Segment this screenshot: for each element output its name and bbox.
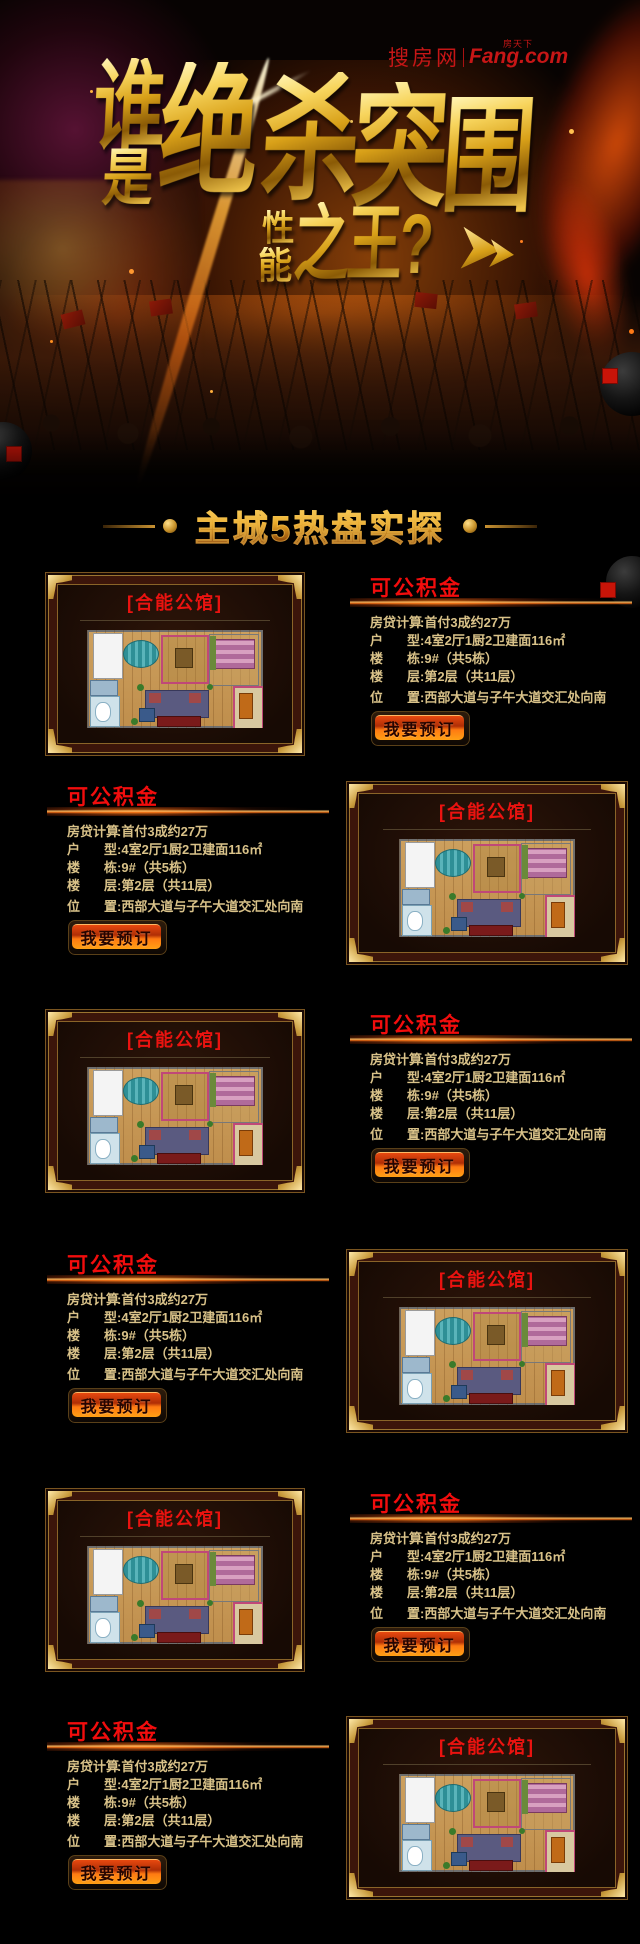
frame-divider xyxy=(80,1536,271,1537)
plan-cushion xyxy=(189,693,201,703)
spec-row: 楼层:第2层（共11层） xyxy=(67,875,220,894)
spec-label: 楼栋 xyxy=(67,857,117,876)
reserve-button-frame[interactable]: 我要预订 xyxy=(370,1147,471,1184)
plan-rug xyxy=(123,640,159,668)
spec-value: 9#（共5栋） xyxy=(121,857,195,876)
property-listing: [合能公馆] xyxy=(0,1009,640,1194)
spec-value: 西部大道与子午大道交汇处向南 xyxy=(424,687,606,706)
spec-row: 房贷计算:首付3成约27万 xyxy=(67,1289,208,1308)
spec-value: 9#（共5栋） xyxy=(121,1325,195,1344)
logo-cn-text: 搜房网 xyxy=(388,42,460,72)
plan-cushion xyxy=(501,1837,513,1847)
plan-wardrobe xyxy=(210,636,216,670)
spec-label: 房贷计算 xyxy=(370,612,420,631)
floor-plan-image xyxy=(87,630,263,728)
property-listing: [合能公馆] xyxy=(0,1716,640,1901)
floorplan-frame[interactable]: [合能公馆] xyxy=(45,1009,305,1193)
section-title: 主城5热盘实探 xyxy=(195,501,445,552)
spec-value: 9#（共5栋） xyxy=(424,1085,498,1104)
plan-desk xyxy=(139,1624,155,1638)
spec-rows: 房贷计算:首付3成约27万户型:4室2厅1厨2卫建面116㎡楼栋:9#（共5栋）… xyxy=(370,1009,640,1139)
spec-value: 第2层（共11层） xyxy=(424,1103,523,1122)
spec-value: 西部大道与子午大道交汇处向南 xyxy=(424,1603,606,1622)
plan-bed xyxy=(215,1076,255,1106)
plan-wardrobe xyxy=(210,1073,216,1107)
spec-label: 户型 xyxy=(370,630,420,649)
logo-sub-text: 房天下 xyxy=(503,37,533,50)
spec-label: 位置 xyxy=(67,1364,117,1383)
spec-row: 楼栋:9#（共5栋） xyxy=(370,648,498,667)
plan-wardrobe xyxy=(522,1313,528,1347)
spec-label: 房贷计算 xyxy=(370,1049,420,1068)
plan-rug xyxy=(123,1556,159,1584)
plan-bathtub xyxy=(95,1139,111,1159)
plan-plant xyxy=(131,1155,138,1162)
plan-bed xyxy=(527,1316,567,1346)
hero-title-char: 绝 xyxy=(155,62,263,204)
property-listing: [合能公馆] xyxy=(0,781,640,966)
spec-rows: 房贷计算:首付3成约27万户型:4室2厅1厨2卫建面116㎡楼栋:9#（共5栋）… xyxy=(67,1249,339,1379)
spec-label: 位置 xyxy=(370,1124,420,1143)
plan-cushion xyxy=(189,1130,201,1140)
spec-value: 第2层（共11层） xyxy=(424,666,523,685)
spec-row: 楼栋:9#（共5栋） xyxy=(370,1085,498,1104)
spec-value: 西部大道与子午大道交汇处向南 xyxy=(121,1831,303,1850)
hero-title-char: 是 xyxy=(100,148,154,210)
decor-line xyxy=(485,525,537,528)
spec-value: 首付3成约27万 xyxy=(424,612,511,631)
spec-label: 楼栋 xyxy=(370,1085,420,1104)
project-name-link[interactable]: [合能公馆] xyxy=(347,798,627,824)
plan-coffee-table xyxy=(157,1632,201,1643)
spec-value: 首付3成约27万 xyxy=(424,1528,511,1547)
spec-label: 房贷计算 xyxy=(67,1289,117,1308)
spec-label: 户型 xyxy=(67,1774,117,1793)
plan-plant xyxy=(137,1600,144,1607)
frame-corner-ornament xyxy=(48,1645,72,1669)
spec-value: 首付3成约27万 xyxy=(424,1049,511,1068)
banner-fade xyxy=(0,430,640,505)
spec-row: 楼层:第2层（共11层） xyxy=(370,666,523,685)
reserve-button[interactable]: 我要预订 xyxy=(72,924,161,949)
hero-title-char: 谁 xyxy=(91,58,168,158)
spec-value: 9#（共5栋） xyxy=(424,648,498,667)
spec-label: 楼层 xyxy=(370,1582,420,1601)
plan-table xyxy=(487,857,505,877)
plan-cushion xyxy=(461,1837,473,1847)
plan-rug xyxy=(435,1317,471,1345)
battle-flag-art xyxy=(514,302,538,320)
spec-row: 位置:西部大道与子午大道交汇处向南 xyxy=(67,1831,303,1850)
plan-coffee-table xyxy=(469,1860,513,1871)
plan-chair xyxy=(239,1609,253,1635)
plan-fridge xyxy=(405,1310,435,1356)
spec-label: 位置 xyxy=(67,1831,117,1850)
battle-flag-art xyxy=(414,292,437,309)
plan-table xyxy=(175,1085,193,1105)
plan-desk xyxy=(451,917,467,931)
plan-table xyxy=(487,1792,505,1812)
spec-label: 楼层 xyxy=(67,875,117,894)
sparks-art xyxy=(90,90,93,93)
floorplan-frame[interactable]: [合能公馆] xyxy=(346,781,628,965)
plan-bed xyxy=(527,848,567,878)
decor-line xyxy=(103,525,155,528)
property-listing: [合能公馆] xyxy=(0,1488,640,1673)
decor-dot xyxy=(163,519,177,533)
spec-label: 楼栋 xyxy=(67,1792,117,1811)
logo-divider xyxy=(463,48,464,67)
plan-counter xyxy=(402,889,430,905)
plan-table xyxy=(487,1325,505,1345)
floorplan-frame[interactable]: [合能公馆] xyxy=(45,1488,305,1672)
spec-value: 4室2厅1厨2卫建面116㎡ xyxy=(121,1307,262,1326)
reserve-button[interactable]: 我要预订 xyxy=(375,1631,464,1656)
plan-cushion xyxy=(461,1370,473,1380)
plan-plant xyxy=(207,1600,213,1606)
floorplan-frame[interactable]: [合能公馆] xyxy=(346,1249,628,1433)
section-header: 主城5热盘实探 xyxy=(0,500,640,552)
spec-label: 房贷计算 xyxy=(67,821,117,840)
plan-plant xyxy=(443,1862,450,1869)
spec-value: 西部大道与子午大道交汇处向南 xyxy=(121,896,303,915)
spec-value: 4室2厅1厨2卫建面116㎡ xyxy=(121,1774,262,1793)
spec-label: 户型 xyxy=(67,1307,117,1326)
plan-plant xyxy=(519,1361,525,1367)
spec-label: 位置 xyxy=(370,687,420,706)
frame-corner-ornament xyxy=(601,1406,625,1430)
plan-coffee-table xyxy=(157,716,201,727)
spec-row: 楼层:第2层（共11层） xyxy=(67,1810,220,1829)
reserve-button[interactable]: 我要预订 xyxy=(375,715,464,740)
spec-value: 4室2厅1厨2卫建面116㎡ xyxy=(424,1546,565,1565)
spec-label: 户型 xyxy=(67,839,117,858)
spec-row: 楼栋:9#（共5栋） xyxy=(67,1792,195,1811)
plan-counter xyxy=(90,680,118,696)
spec-rows: 房贷计算:首付3成约27万户型:4室2厅1厨2卫建面116㎡楼栋:9#（共5栋）… xyxy=(67,1716,339,1846)
plan-plant xyxy=(131,718,138,725)
spec-row: 户型:4室2厅1厨2卫建面116㎡ xyxy=(67,1774,262,1793)
frame-divider xyxy=(80,1057,271,1058)
property-listing: [合能公馆] xyxy=(0,1249,640,1434)
floorplan-frame[interactable]: [合能公馆] xyxy=(45,572,305,756)
spec-value: 9#（共5栋） xyxy=(424,1564,498,1583)
hero-title-text: 之王? xyxy=(292,202,433,286)
plan-cushion xyxy=(149,1130,161,1140)
spec-label: 楼层 xyxy=(67,1343,117,1362)
reserve-button-frame[interactable]: 我要预订 xyxy=(67,919,168,956)
project-name-link[interactable]: [合能公馆] xyxy=(46,1026,304,1052)
plan-chair xyxy=(239,1130,253,1156)
plan-rug xyxy=(435,1784,471,1812)
frame-corner-ornament xyxy=(601,1873,625,1897)
spec-value: 第2层（共11层） xyxy=(424,1582,523,1601)
plan-table xyxy=(175,648,193,668)
plan-fridge xyxy=(93,633,123,679)
plan-counter xyxy=(90,1596,118,1612)
spec-label: 户型 xyxy=(370,1067,420,1086)
frame-corner-ornament xyxy=(278,1166,302,1190)
plan-wardrobe xyxy=(522,845,528,879)
spec-row: 户型:4室2厅1厨2卫建面116㎡ xyxy=(67,839,262,858)
plan-plant xyxy=(443,1395,450,1402)
spec-row: 位置:西部大道与子午大道交汇处向南 xyxy=(370,1124,606,1143)
frame-corner-ornament xyxy=(278,729,302,753)
spec-rows: 房贷计算:首付3成约27万户型:4室2厅1厨2卫建面116㎡楼栋:9#（共5栋）… xyxy=(67,781,339,911)
plan-plant xyxy=(449,1361,456,1368)
plan-plant xyxy=(207,684,213,690)
floor-plan-image xyxy=(399,1307,575,1405)
spec-row: 房贷计算:首付3成约27万 xyxy=(67,1756,208,1775)
reserve-button-frame[interactable]: 我要预订 xyxy=(370,1626,471,1663)
spec-row: 房贷计算:首付3成约27万 xyxy=(370,612,511,631)
spec-label: 楼层 xyxy=(370,1103,420,1122)
spec-row: 户型:4室2厅1厨2卫建面116㎡ xyxy=(67,1307,262,1326)
spec-label: 房贷计算 xyxy=(67,1756,117,1775)
plan-cushion xyxy=(461,902,473,912)
spec-label: 房贷计算 xyxy=(370,1528,420,1547)
hero-title-char: 围 xyxy=(438,94,539,220)
spec-value: 首付3成约27万 xyxy=(121,1289,208,1308)
spec-label: 楼层 xyxy=(67,1810,117,1829)
frame-corner-ornament xyxy=(601,938,625,962)
spec-value: 第2层（共11层） xyxy=(121,1810,220,1829)
plan-rug xyxy=(435,849,471,877)
frame-corner-ornament xyxy=(48,729,72,753)
fang-logo[interactable]: 搜房网 房天下 Fang.com xyxy=(388,42,568,72)
spec-row: 位置:西部大道与子午大道交汇处向南 xyxy=(370,687,606,706)
spec-label: 户型 xyxy=(370,1546,420,1565)
plan-fridge xyxy=(93,1070,123,1116)
plan-cushion xyxy=(189,1609,201,1619)
battle-flag-art xyxy=(149,299,173,317)
floor-plan-image xyxy=(399,1774,575,1872)
project-name-link[interactable]: [合能公馆] xyxy=(46,1505,304,1531)
plan-plant xyxy=(449,1828,456,1835)
reserve-button-frame[interactable]: 我要预订 xyxy=(370,710,471,747)
plan-plant xyxy=(443,927,450,934)
frame-corner-ornament xyxy=(349,1873,373,1897)
plan-desk xyxy=(451,1385,467,1399)
decor-dot xyxy=(463,519,477,533)
plan-coffee-table xyxy=(469,1393,513,1404)
spec-label: 位置 xyxy=(67,896,117,915)
plan-bathtub xyxy=(95,702,111,722)
plan-chair xyxy=(551,1370,565,1396)
plan-bathtub xyxy=(407,1379,423,1399)
listing-info: 可公积金 房贷计算:首付3成约27万户型:4室2厅1厨2卫建面116㎡楼栋:9#… xyxy=(370,572,640,757)
plan-fridge xyxy=(405,842,435,888)
plan-counter xyxy=(90,1117,118,1133)
plan-cushion xyxy=(501,1370,513,1380)
plan-chair xyxy=(551,1837,565,1863)
plan-desk xyxy=(139,1145,155,1159)
spec-row: 楼栋:9#（共5栋） xyxy=(67,1325,195,1344)
spec-row: 户型:4室2厅1厨2卫建面116㎡ xyxy=(370,630,565,649)
floor-plan-image xyxy=(87,1067,263,1165)
project-name-link[interactable]: [合能公馆] xyxy=(347,1733,627,1759)
plan-chair xyxy=(551,902,565,928)
spec-value: 9#（共5栋） xyxy=(121,1792,195,1811)
plan-bed xyxy=(527,1783,567,1813)
plan-bathtub xyxy=(407,911,423,931)
plan-fridge xyxy=(93,1549,123,1595)
spec-row: 楼栋:9#（共5栋） xyxy=(67,857,195,876)
red-tag-art xyxy=(602,368,618,384)
spec-row: 房贷计算:首付3成约27万 xyxy=(370,1049,511,1068)
spec-row: 房贷计算:首付3成约27万 xyxy=(67,821,208,840)
property-listing: [合能公馆] xyxy=(0,572,640,757)
floorplan-frame[interactable]: [合能公馆] xyxy=(346,1716,628,1900)
plan-plant xyxy=(519,1828,525,1834)
spec-row: 位置:西部大道与子午大道交汇处向南 xyxy=(67,896,303,915)
plan-coffee-table xyxy=(469,925,513,936)
spec-label: 楼层 xyxy=(370,666,420,685)
hero-title-char: 突 xyxy=(348,82,453,216)
project-name-link[interactable]: [合能公馆] xyxy=(347,1266,627,1292)
hero-title-char: 性 xyxy=(262,210,294,246)
spec-label: 位置 xyxy=(370,1603,420,1622)
hero-banner: 搜房网 房天下 Fang.com 谁 是 绝 杀 突 围 性 能 之王? xyxy=(0,0,640,505)
hero-title-char: 能 xyxy=(258,247,292,285)
spec-row: 楼层:第2层（共11层） xyxy=(67,1343,220,1362)
plan-counter xyxy=(402,1357,430,1373)
frame-divider xyxy=(383,1764,590,1765)
plan-cushion xyxy=(149,693,161,703)
listing-info: 可公积金 房贷计算:首付3成约27万户型:4室2厅1厨2卫建面116㎡楼栋:9#… xyxy=(370,1009,640,1194)
spec-row: 房贷计算:首付3成约27万 xyxy=(370,1528,511,1547)
spec-label: 楼栋 xyxy=(370,1564,420,1583)
plan-bed xyxy=(215,639,255,669)
spec-row: 楼层:第2层（共11层） xyxy=(370,1103,523,1122)
plan-coffee-table xyxy=(157,1153,201,1164)
plan-chair xyxy=(239,693,253,719)
spec-value: 4室2厅1厨2卫建面116㎡ xyxy=(424,1067,565,1086)
plan-cushion xyxy=(149,1609,161,1619)
spec-value: 首付3成约27万 xyxy=(121,1756,208,1775)
frame-divider xyxy=(383,1297,590,1298)
listing-info: 可公积金 房贷计算:首付3成约27万户型:4室2厅1厨2卫建面116㎡楼栋:9#… xyxy=(67,781,339,966)
listing-info: 可公积金 房贷计算:首付3成约27万户型:4室2厅1厨2卫建面116㎡楼栋:9#… xyxy=(370,1488,640,1673)
frame-corner-ornament xyxy=(48,1166,72,1190)
plan-plant xyxy=(207,1121,213,1127)
reserve-button-frame[interactable]: 我要预订 xyxy=(67,1854,168,1891)
plan-table xyxy=(175,1564,193,1584)
spec-value: 首付3成约27万 xyxy=(121,821,208,840)
plan-plant xyxy=(137,1121,144,1128)
spec-rows: 房贷计算:首付3成约27万户型:4室2厅1厨2卫建面116㎡楼栋:9#（共5栋）… xyxy=(370,1488,640,1618)
plan-rug xyxy=(123,1077,159,1105)
spec-row: 位置:西部大道与子午大道交汇处向南 xyxy=(67,1364,303,1383)
spec-row: 位置:西部大道与子午大道交汇处向南 xyxy=(370,1603,606,1622)
spec-label: 楼栋 xyxy=(67,1325,117,1344)
spec-row: 户型:4室2厅1厨2卫建面116㎡ xyxy=(370,1546,565,1565)
plan-plant xyxy=(449,893,456,900)
frame-divider xyxy=(80,620,271,621)
frame-corner-ornament xyxy=(278,1645,302,1669)
plan-plant xyxy=(131,1634,138,1641)
plan-bathtub xyxy=(407,1846,423,1866)
plan-bed xyxy=(215,1555,255,1585)
spec-rows: 房贷计算:首付3成约27万户型:4室2厅1厨2卫建面116㎡楼栋:9#（共5栋）… xyxy=(370,572,640,702)
frame-corner-ornament xyxy=(349,938,373,962)
plan-desk xyxy=(451,1852,467,1866)
frame-corner-ornament xyxy=(349,1406,373,1430)
plan-counter xyxy=(402,1824,430,1840)
listing-info: 可公积金 房贷计算:首付3成约27万户型:4室2厅1厨2卫建面116㎡楼栋:9#… xyxy=(67,1249,339,1434)
plan-plant xyxy=(519,893,525,899)
reserve-button[interactable]: 我要预订 xyxy=(72,1392,161,1417)
plan-wardrobe xyxy=(210,1552,216,1586)
project-name-link[interactable]: [合能公馆] xyxy=(46,589,304,615)
plan-fridge xyxy=(405,1777,435,1823)
spec-label: 楼栋 xyxy=(370,648,420,667)
floor-plan-image xyxy=(87,1546,263,1644)
reserve-button[interactable]: 我要预订 xyxy=(72,1859,161,1884)
spec-value: 西部大道与子午大道交汇处向南 xyxy=(121,1364,303,1383)
spec-row: 楼栋:9#（共5栋） xyxy=(370,1564,498,1583)
floor-plan-image xyxy=(399,839,575,937)
page: 搜房网 房天下 Fang.com 谁 是 绝 杀 突 围 性 能 之王? 主城5… xyxy=(0,0,640,1944)
spec-value: 第2层（共11层） xyxy=(121,1343,220,1362)
reserve-button-frame[interactable]: 我要预订 xyxy=(67,1387,168,1424)
spec-value: 4室2厅1厨2卫建面116㎡ xyxy=(121,839,262,858)
spec-value: 第2层（共11层） xyxy=(121,875,220,894)
frame-divider xyxy=(383,829,590,830)
reserve-button[interactable]: 我要预订 xyxy=(375,1152,464,1177)
plan-wardrobe xyxy=(522,1780,528,1814)
spec-row: 楼层:第2层（共11层） xyxy=(370,1582,523,1601)
plan-plant xyxy=(137,684,144,691)
plan-cushion xyxy=(501,902,513,912)
plan-bathtub xyxy=(95,1618,111,1638)
listing-info: 可公积金 房贷计算:首付3成约27万户型:4室2厅1厨2卫建面116㎡楼栋:9#… xyxy=(67,1716,339,1901)
spec-value: 4室2厅1厨2卫建面116㎡ xyxy=(424,630,565,649)
spec-row: 户型:4室2厅1厨2卫建面116㎡ xyxy=(370,1067,565,1086)
hero-title-char: 杀 xyxy=(257,72,363,208)
spec-value: 西部大道与子午大道交汇处向南 xyxy=(424,1124,606,1143)
plan-desk xyxy=(139,708,155,722)
